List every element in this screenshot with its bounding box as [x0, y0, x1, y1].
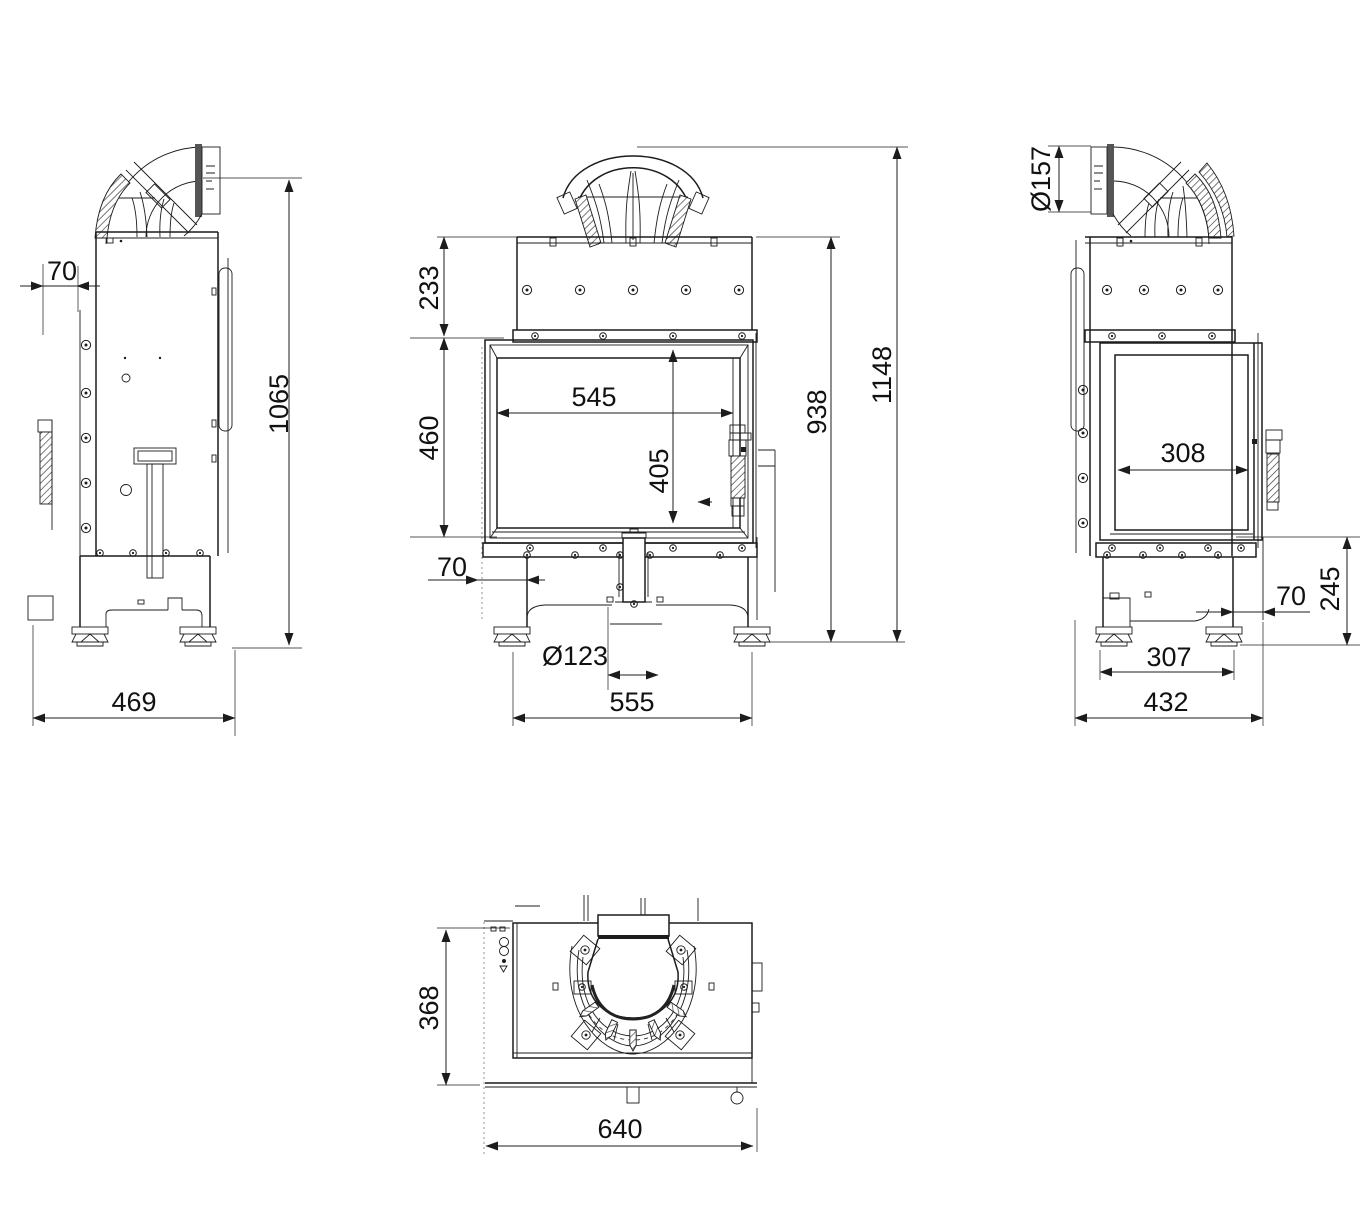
fireplace-insert-dimension-drawing: 70 1065 469: [0, 0, 1369, 1217]
side-heat-shield: [1071, 268, 1084, 431]
dimension-front-flue-diameter: Ø123: [542, 607, 658, 690]
base-front: [483, 529, 770, 646]
front-view: 233 460 545 405 70 Ø123 555 938 1148: [410, 147, 908, 726]
screw-column: [1078, 385, 1087, 527]
flue-pedestal: [615, 529, 652, 607]
dim-label-right-rear-offset: 70: [1276, 581, 1306, 611]
dimension-front-upper-section: 233: [410, 237, 517, 338]
dim-label-front-door-height: 460: [414, 415, 444, 460]
dim-label-front-glass-height: 405: [644, 448, 674, 493]
dim-label-front-body-height: 938: [802, 389, 832, 434]
upper-body-front: [513, 237, 757, 342]
dimension-front-body-height: 938: [756, 237, 905, 642]
dimension-right-rear-offset: 70: [1196, 581, 1310, 612]
dim-label-front-base-width: 555: [609, 687, 654, 717]
top-view: 368 640: [414, 895, 762, 1155]
dimension-front-door-height: 460: [410, 338, 497, 537]
side-heat-shield: [219, 268, 232, 431]
dimension-right-total-depth: 432: [1075, 620, 1263, 726]
dim-label-front-base-offset: 70: [437, 552, 467, 582]
feet: [494, 627, 770, 646]
door-latch: [1252, 430, 1282, 510]
flue-elbow-right: [1091, 144, 1234, 244]
dim-label-front-flue-diameter: Ø123: [542, 641, 608, 671]
dim-label-right-total-depth: 432: [1143, 687, 1188, 717]
dimension-right-flue-diameter: Ø157: [1026, 146, 1091, 212]
dimension-left-front-offset: 70: [20, 256, 100, 335]
dim-label-left-front-offset: 70: [47, 256, 77, 286]
dim-label-right-flue-diameter: Ø157: [1026, 146, 1056, 212]
dim-label-right-plinth-height: 245: [1315, 566, 1345, 611]
flue-connector: [598, 915, 669, 936]
dimension-front-glass-height: 405: [644, 350, 674, 523]
dim-label-front-glass-width: 545: [571, 382, 616, 412]
dim-label-top-total-width: 640: [597, 1114, 642, 1144]
flue-collar-top: [553, 935, 714, 1054]
dimension-top-body-depth: 368: [414, 928, 510, 1085]
dimension-front-glass-width: 545: [497, 382, 733, 413]
dim-label-left-depth: 469: [111, 687, 156, 717]
dim-label-right-glass-width: 308: [1160, 438, 1205, 468]
flue-elbow-left: [95, 144, 220, 244]
feet: [72, 627, 216, 646]
dim-label-front-upper-section: 233: [414, 265, 444, 310]
door-latch-strip: [38, 420, 52, 530]
flue-swivel-fan: [557, 156, 709, 247]
door-latch: [729, 425, 775, 592]
dim-label-right-feet-spacing: 307: [1146, 642, 1191, 672]
dimension-right-feet-spacing: 307: [1100, 642, 1234, 680]
dim-label-front-total-height: 1148: [867, 346, 897, 404]
dim-label-left-total-height: 1065: [264, 374, 294, 434]
technical-drawing: 70 1065 469: [0, 0, 1369, 1217]
body-side-left: [28, 232, 232, 646]
door-handle: [134, 448, 176, 578]
knob: [731, 1092, 743, 1104]
dimension-right-glass-width: 308: [1118, 438, 1248, 470]
lever-stub: [627, 1087, 639, 1103]
side-view-left: 70 1065 469: [20, 144, 302, 736]
ash-drawer: [28, 596, 53, 620]
dimension-top-total-width: 640: [486, 1108, 757, 1152]
dim-label-top-body-depth: 368: [414, 985, 444, 1030]
screw-column: [81, 340, 90, 532]
front-frame-top: [485, 938, 762, 1105]
side-view-right: Ø157 308 70 245 307 432: [1026, 144, 1360, 726]
